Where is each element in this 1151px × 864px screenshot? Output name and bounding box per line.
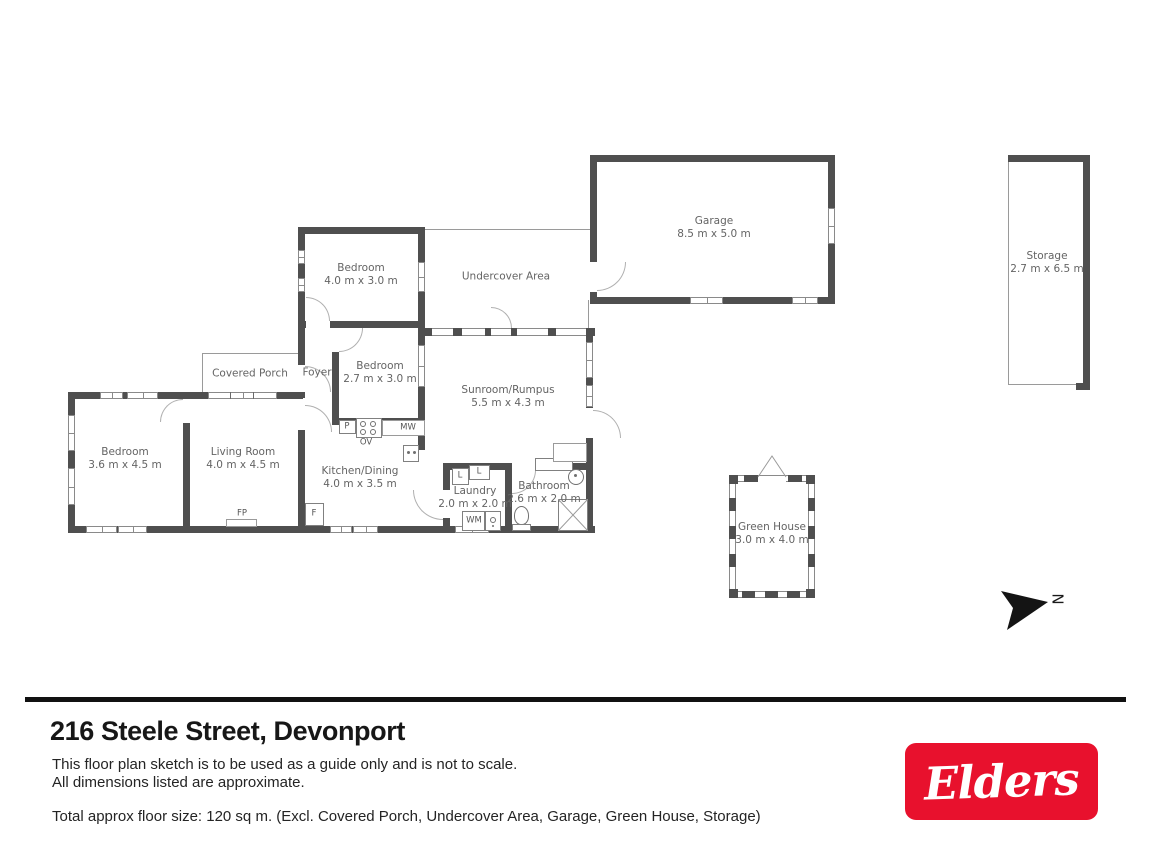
greenhouse-panel — [788, 475, 802, 482]
room-label-undercover: Undercover Area — [462, 271, 550, 284]
greenhouse-panel — [729, 498, 736, 511]
room-label-kitchen: Kitchen/Dining 4.0 m x 3.5 m — [322, 465, 399, 491]
window — [298, 278, 305, 292]
door-arc — [597, 262, 626, 291]
porch-top-line — [202, 353, 299, 354]
door-arc — [491, 307, 512, 328]
window — [86, 526, 117, 533]
window-post — [453, 328, 462, 336]
tub-dot — [492, 525, 494, 527]
greenhouse-panel — [787, 591, 800, 598]
greenhouse-corner — [729, 589, 738, 598]
window — [353, 526, 378, 533]
room-label-bedroom-mid: Bedroom 2.7 m x 3.0 m — [343, 360, 416, 386]
greenhouse-panel — [808, 498, 815, 511]
north-arrow-icon — [998, 585, 1056, 633]
window — [586, 342, 593, 378]
greenhouse-panel — [808, 526, 815, 539]
window — [330, 526, 352, 533]
window-post — [548, 328, 556, 336]
window-post — [511, 328, 517, 336]
disclaimer-line: This floor plan sketch is to be used as … — [52, 756, 517, 773]
door-arc — [305, 405, 332, 432]
storage-left-line — [1008, 162, 1009, 384]
room-label-covered-porch: Covered Porch — [212, 368, 288, 381]
door-gap — [332, 328, 339, 352]
disclaimer-line: All dimensions listed are approximate. — [52, 774, 305, 791]
linen-label: L — [477, 468, 482, 477]
stove-burner — [360, 421, 366, 427]
elders-logo-text: Elders — [923, 752, 1079, 810]
door-gap — [512, 463, 535, 470]
window — [298, 250, 305, 264]
fridge-label: F — [312, 510, 317, 519]
floor-plan-page: Bedroom 4.0 m x 3.0 m Undercover Area Ga… — [0, 0, 1151, 864]
pantry-label: P — [344, 423, 349, 432]
room-label-foyer: Foyer — [302, 367, 331, 380]
porch-left-line — [202, 353, 203, 393]
wall — [298, 430, 305, 533]
window — [68, 415, 75, 451]
window — [792, 297, 818, 304]
door-arc — [593, 410, 621, 438]
divider-bar — [25, 697, 1126, 702]
washing-machine-label: WM — [466, 517, 482, 526]
door-arc — [306, 297, 330, 321]
window — [118, 526, 147, 533]
window-post — [425, 328, 432, 336]
microwave-label: MW — [400, 424, 416, 433]
room-label-bathroom: Bathroom 2.6 m x 2.0 m — [507, 480, 580, 506]
window — [100, 392, 123, 399]
stove-burner — [360, 429, 366, 435]
door-gap — [491, 329, 511, 335]
window — [127, 392, 158, 399]
room-label-storage: Storage 2.7 m x 6.5 m — [1010, 250, 1083, 276]
faucet-dot — [413, 451, 416, 454]
greenhouse-panel — [765, 591, 778, 598]
kitchen-sink — [403, 445, 419, 462]
door-gap — [590, 262, 597, 292]
window-mullion — [253, 392, 254, 399]
greenhouse-door-peak — [754, 453, 790, 478]
greenhouse-corner — [806, 589, 815, 598]
room-label-garage: Garage 8.5 m x 5.0 m — [677, 215, 750, 241]
wall — [1008, 155, 1090, 162]
room-label-bedroom-top: Bedroom 4.0 m x 3.0 m — [324, 262, 397, 288]
window — [586, 385, 593, 407]
room-label-living-room: Living Room 4.0 m x 4.5 m — [206, 446, 279, 472]
oven-label: OV — [360, 439, 372, 448]
window — [418, 262, 425, 292]
garage-sunroom-line — [588, 300, 589, 329]
storage-bottom-line — [1008, 384, 1084, 385]
greenhouse-panel — [742, 591, 755, 598]
window — [690, 297, 723, 304]
window — [208, 392, 277, 399]
wall — [590, 155, 835, 162]
room-label-green-house: Green House 3.0 m x 4.0 m — [735, 521, 808, 547]
greenhouse-corner — [806, 475, 815, 484]
sunroom-bench — [553, 443, 587, 462]
window — [418, 345, 425, 387]
fireplace-box — [226, 519, 257, 527]
door-gap — [586, 408, 593, 438]
wall — [1083, 162, 1090, 390]
stove-burner — [370, 421, 376, 427]
room-label-laundry: Laundry 2.0 m x 2.0 m — [438, 485, 511, 511]
faucet-dot — [407, 451, 410, 454]
window-mullion — [230, 392, 231, 399]
door-gap — [183, 399, 190, 423]
north-label: N — [1049, 593, 1067, 604]
fireplace-label: FP — [237, 510, 247, 519]
toilet-cistern — [512, 524, 531, 531]
stove-burner — [370, 429, 376, 435]
door-arc — [160, 399, 183, 422]
door-gap — [306, 321, 330, 328]
tub-drain — [490, 517, 496, 523]
room-label-bedroom-left: Bedroom 3.6 m x 4.5 m — [88, 446, 161, 472]
door-arc — [339, 328, 363, 352]
wall — [298, 227, 425, 234]
floor-size-note: Total approx floor size: 120 sq m. (Excl… — [52, 808, 761, 825]
toilet-bowl — [514, 506, 529, 525]
greenhouse-corner — [729, 475, 738, 484]
wall — [1076, 383, 1090, 390]
window-post — [485, 328, 491, 336]
sink-drain — [574, 474, 577, 477]
greenhouse-panel — [808, 554, 815, 567]
linen-label: L — [458, 472, 463, 481]
window — [828, 208, 835, 244]
elders-logo: Elders — [905, 743, 1098, 820]
room-label-sunroom: Sunroom/Rumpus 5.5 m x 4.3 m — [461, 384, 554, 410]
window — [68, 468, 75, 505]
undercover-top-line — [425, 229, 590, 230]
page-title: 216 Steele Street, Devonport — [50, 716, 405, 747]
greenhouse-panel — [729, 554, 736, 567]
